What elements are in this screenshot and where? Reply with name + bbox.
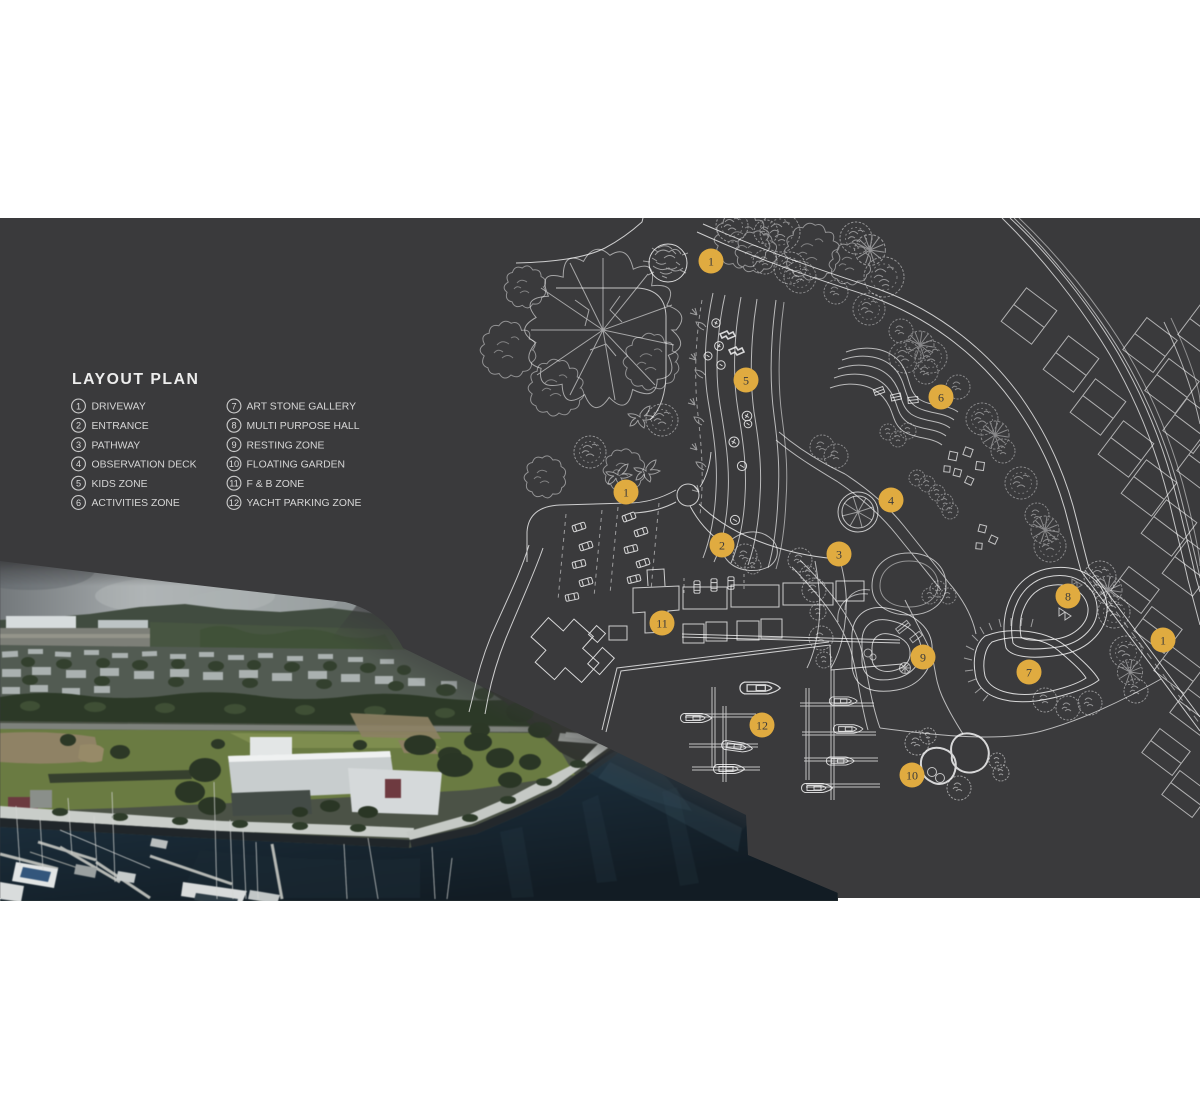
svg-text:KIDS ZONE: KIDS ZONE [92,479,148,490]
svg-text:5: 5 [76,479,81,489]
svg-text:6: 6 [76,498,81,508]
svg-text:8: 8 [231,421,236,431]
svg-text:RESTING ZONE: RESTING ZONE [247,440,325,451]
svg-text:1: 1 [76,401,81,411]
svg-text:7: 7 [1026,666,1032,680]
svg-text:9: 9 [920,651,926,665]
svg-text:FLOATING GARDEN: FLOATING GARDEN [247,460,346,471]
svg-text:3: 3 [836,548,842,562]
svg-text:ACTIVITIES ZONE: ACTIVITIES ZONE [92,498,180,509]
svg-text:5: 5 [743,374,749,388]
svg-text:10: 10 [906,769,918,783]
svg-text:ENTRANCE: ENTRANCE [92,421,149,432]
svg-text:2: 2 [719,539,725,553]
svg-text:11: 11 [656,617,668,631]
svg-text:ART STONE GALLERY: ART STONE GALLERY [247,402,357,413]
svg-text:1: 1 [708,255,714,269]
svg-text:4: 4 [888,494,894,508]
svg-text:12: 12 [756,719,768,733]
svg-text:9: 9 [231,440,236,450]
svg-text:MULTI PURPOSE HALL: MULTI PURPOSE HALL [247,421,360,432]
svg-text:6: 6 [938,391,944,405]
svg-text:OBSERVATION DECK: OBSERVATION DECK [92,460,197,471]
svg-text:DRIVEWAY: DRIVEWAY [92,402,146,413]
svg-text:YACHT PARKING ZONE: YACHT PARKING ZONE [247,498,362,509]
svg-text:10: 10 [229,459,239,469]
svg-text:F & B ZONE: F & B ZONE [247,479,305,490]
svg-text:11: 11 [229,479,239,489]
svg-text:1: 1 [1160,634,1166,648]
svg-text:1: 1 [623,486,629,500]
svg-text:4: 4 [76,459,81,469]
svg-text:8: 8 [1065,590,1071,604]
svg-text:3: 3 [76,440,81,450]
svg-text:7: 7 [231,401,236,411]
svg-text:LAYOUT PLAN: LAYOUT PLAN [72,371,199,388]
svg-text:12: 12 [229,498,239,508]
svg-text:PATHWAY: PATHWAY [92,440,141,451]
svg-text:2: 2 [76,421,81,431]
